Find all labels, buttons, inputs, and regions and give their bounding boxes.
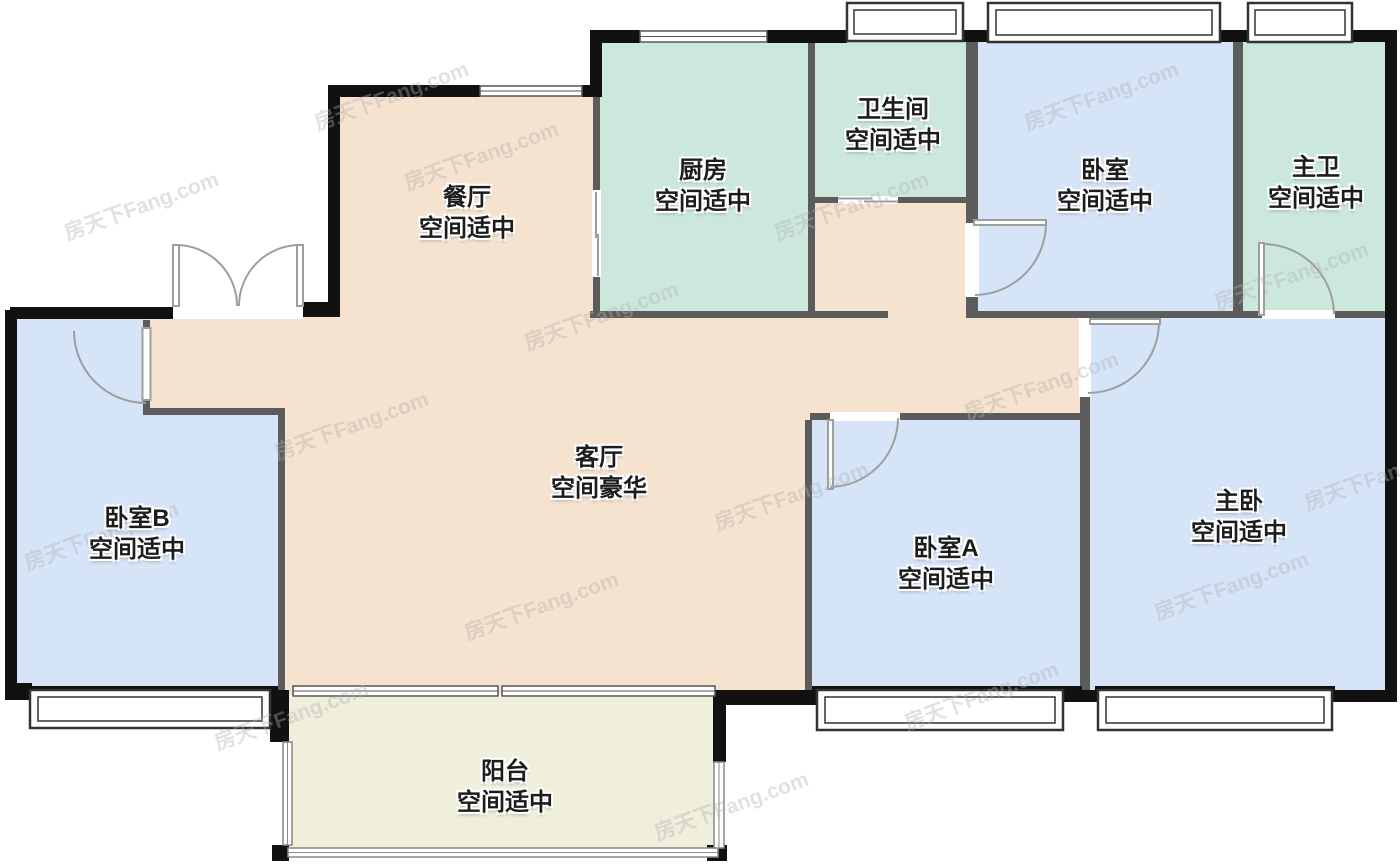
label-dining: 餐厅空间适中: [419, 182, 515, 244]
wall-kitchen-left-lower: [593, 277, 600, 315]
wall-left-edge: [5, 310, 17, 700]
wall-bedroom-a-left: [805, 420, 812, 690]
label-bedroom-a: 卧室A空间适中: [898, 533, 994, 595]
wall-bedroom-b-right: [278, 415, 285, 690]
balcony-post-bottom-left: [272, 845, 289, 861]
wall-kitchen-bottom: [590, 311, 808, 318]
bay-window-bedroom-a: [817, 690, 1063, 730]
wall-bedroom-a-top-right: [900, 413, 1085, 420]
label-bedroom-b: 卧室B空间适中: [89, 503, 185, 565]
label-living: 客厅空间豪华: [551, 442, 647, 504]
label-master-bath: 主卫空间适中: [1268, 152, 1364, 214]
opening-master-bedroom: [1079, 318, 1091, 397]
bay-window-master-bedroom: [1098, 690, 1332, 730]
wall-bedroom-a-top-left: [810, 413, 830, 420]
wall-dining-top-left: [328, 85, 480, 97]
wall-top-between-bays: [1220, 30, 1248, 42]
wall-bottom-mid: [713, 690, 819, 705]
wall-kitchen-top-right: [767, 30, 847, 43]
wall-bedroom-b-notch-horizontal: [143, 408, 285, 415]
opening-bedroom-a: [830, 412, 900, 421]
floor-plan: 餐厅空间适中 厨房空间适中 卫生间空间适中 卧室空间适中 主卫空间适中 客厅空间…: [0, 0, 1400, 867]
wall-master-bath-bottom-stub: [1335, 311, 1385, 318]
wall-bottom-right-corner: [1330, 690, 1397, 702]
label-master-bedroom: 主卧空间适中: [1191, 486, 1287, 548]
wall-master-bedroom-left: [1080, 397, 1090, 692]
bay-window-master-bath: [1248, 3, 1352, 42]
wall-bedroom-master-bath-divider: [1233, 42, 1243, 311]
entry-door-arc-left: [176, 245, 237, 306]
balcony-post-top-right: [713, 700, 726, 762]
wall-bedroom-bottom: [972, 311, 1262, 318]
wall-kitchen-top-left: [602, 30, 640, 43]
floor-plan-drawing: [0, 0, 1400, 867]
wall-dining-left: [328, 85, 340, 315]
label-bedroom: 卧室空间适中: [1057, 155, 1153, 217]
entry-door-arc-right: [239, 245, 300, 306]
wall-bathroom-bottom-left: [812, 197, 838, 203]
bay-window-bedroom: [988, 3, 1220, 42]
label-bathroom: 卫生间空间适中: [845, 94, 941, 156]
wall-kitchen-left-upper: [593, 97, 600, 190]
wall-bathroom-bottom-right: [898, 197, 972, 203]
balcony-post-top-left: [270, 690, 289, 742]
label-kitchen: 厨房空间适中: [655, 155, 751, 217]
wall-entry-left: [10, 307, 173, 319]
label-balcony: 阳台空间适中: [457, 756, 553, 818]
wall-right-edge: [1385, 30, 1397, 702]
opening-master-bath: [1262, 310, 1335, 319]
opening-bedroom: [965, 223, 979, 297]
wall-corridor-stub: [808, 311, 888, 318]
bay-window-bedroom-b: [30, 690, 270, 728]
wall-step-vertical: [590, 30, 602, 97]
entry-double-door: [173, 245, 303, 306]
bay-window-bathroom: [847, 3, 963, 41]
wall-bath-bedroom-upper: [966, 42, 978, 223]
opening-entry: [173, 300, 303, 319]
wall-top-mid: [963, 30, 988, 42]
wall-kitchen-bath-divider: [808, 43, 815, 313]
opening-bathroom: [838, 196, 898, 204]
